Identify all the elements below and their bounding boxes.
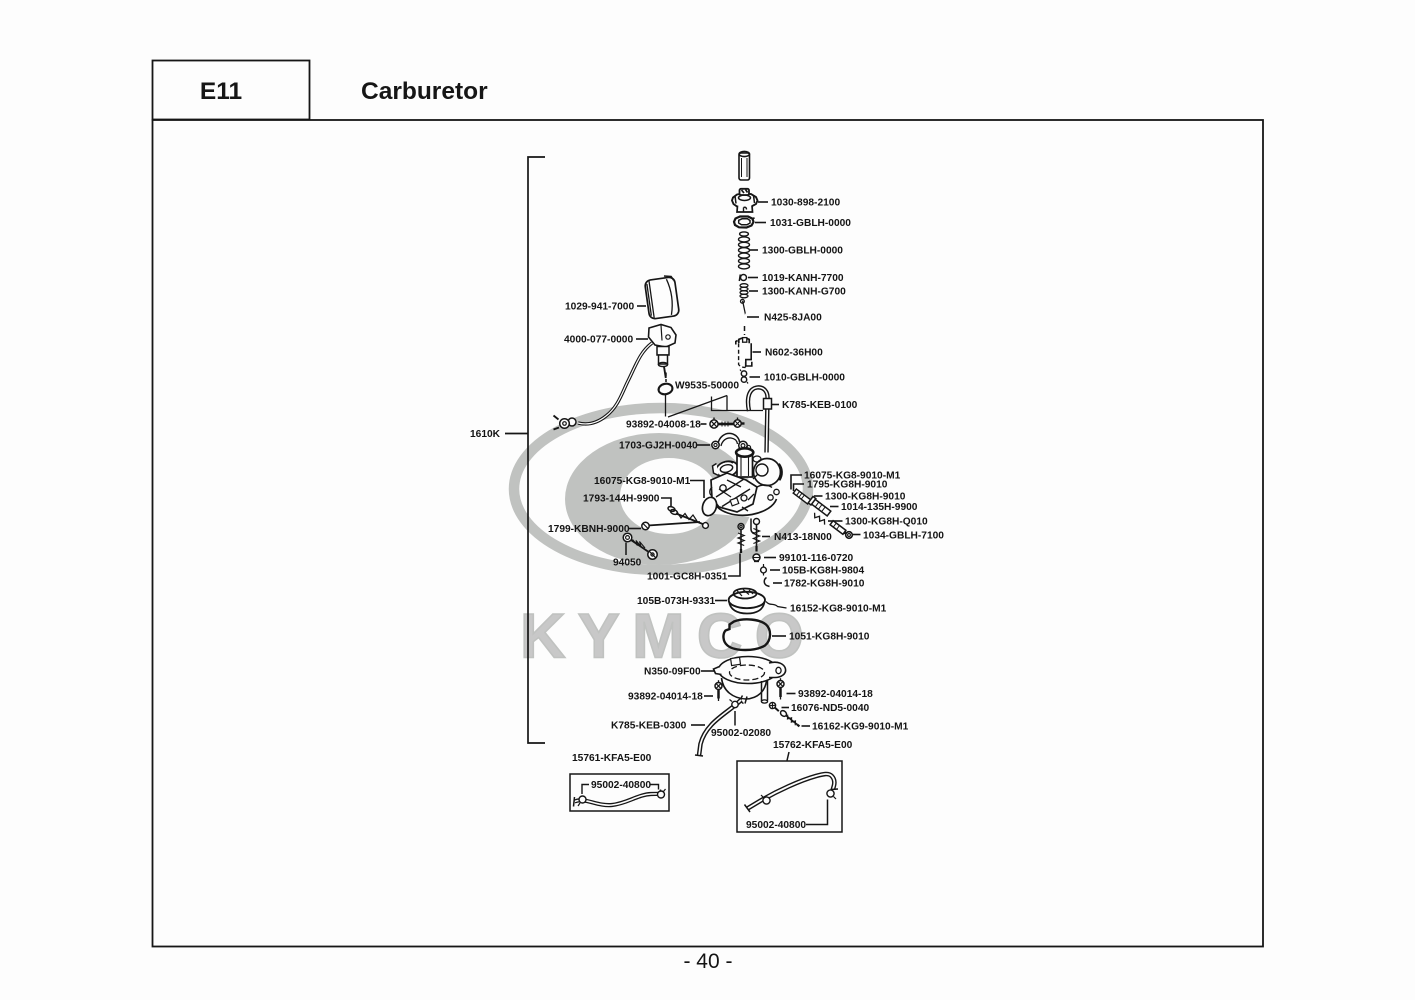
svg-text:1799-KBNH-9000: 1799-KBNH-9000 xyxy=(548,524,630,535)
svg-text:1010-GBLH-0000: 1010-GBLH-0000 xyxy=(764,373,845,384)
svg-text:16162-KG9-9010-M1: 16162-KG9-9010-M1 xyxy=(812,722,909,733)
svg-text:4000-077-0000: 4000-077-0000 xyxy=(564,335,633,346)
svg-text:K785-KEB-0100: K785-KEB-0100 xyxy=(782,400,858,411)
svg-text:99101-116-0720: 99101-116-0720 xyxy=(779,553,854,564)
svg-text:93892-04014-18: 93892-04014-18 xyxy=(628,692,703,703)
svg-text:1051-KG8H-9010: 1051-KG8H-9010 xyxy=(789,632,870,643)
svg-text:Carburetor: Carburetor xyxy=(361,78,488,105)
svg-text:105B-KG8H-9804: 105B-KG8H-9804 xyxy=(782,566,864,577)
svg-text:16076-ND5-0040: 16076-ND5-0040 xyxy=(791,703,869,714)
svg-text:1300-KANH-G700: 1300-KANH-G700 xyxy=(762,287,846,298)
svg-text:1300-KG8H-Q010: 1300-KG8H-Q010 xyxy=(845,517,928,528)
svg-text:16152-KG8-9010-M1: 16152-KG8-9010-M1 xyxy=(790,604,887,615)
svg-text:1300-GBLH-0000: 1300-GBLH-0000 xyxy=(762,246,843,257)
svg-text:94050: 94050 xyxy=(613,558,642,569)
svg-text:N413-18N00: N413-18N00 xyxy=(774,532,832,543)
svg-text:95002-40800: 95002-40800 xyxy=(746,820,806,831)
svg-text:1300-KG8H-9010: 1300-KG8H-9010 xyxy=(825,492,906,503)
svg-text:1034-GBLH-7100: 1034-GBLH-7100 xyxy=(863,531,944,542)
svg-text:1782-KG8H-9010: 1782-KG8H-9010 xyxy=(784,579,865,590)
svg-text:1610K: 1610K xyxy=(470,429,501,440)
svg-text:93892-04008-18: 93892-04008-18 xyxy=(626,420,701,431)
svg-text:E11: E11 xyxy=(200,78,242,105)
svg-text:95002-02080: 95002-02080 xyxy=(711,728,771,739)
svg-text:N350-09F00: N350-09F00 xyxy=(644,667,701,678)
svg-text:1703-GJ2H-0040: 1703-GJ2H-0040 xyxy=(619,441,698,452)
svg-text:105B-073H-9331: 105B-073H-9331 xyxy=(637,596,715,607)
svg-text:1014-135H-9900: 1014-135H-9900 xyxy=(841,502,918,513)
svg-text:1795-KG8H-9010: 1795-KG8H-9010 xyxy=(807,480,888,491)
svg-text:1001-GC8H-0351: 1001-GC8H-0351 xyxy=(647,572,728,583)
svg-text:- 40 -: - 40 - xyxy=(683,950,732,973)
svg-text:1029-941-7000: 1029-941-7000 xyxy=(565,302,634,313)
svg-text:1019-KANH-7700: 1019-KANH-7700 xyxy=(762,273,844,284)
svg-text:N425-8JA00: N425-8JA00 xyxy=(764,313,822,324)
svg-text:N602-36H00: N602-36H00 xyxy=(765,348,823,359)
svg-text:1793-144H-9900: 1793-144H-9900 xyxy=(583,494,660,505)
svg-text:K785-KEB-0300: K785-KEB-0300 xyxy=(611,721,687,732)
svg-text:W9535-50000: W9535-50000 xyxy=(675,381,739,392)
svg-text:95002-40800: 95002-40800 xyxy=(591,780,651,791)
svg-text:1030-898-2100: 1030-898-2100 xyxy=(771,198,840,209)
svg-text:15761-KFA5-E00: 15761-KFA5-E00 xyxy=(572,753,652,764)
svg-text:16075-KG8-9010-M1: 16075-KG8-9010-M1 xyxy=(594,476,691,487)
svg-text:1031-GBLH-0000: 1031-GBLH-0000 xyxy=(770,218,851,229)
svg-text:93892-04014-18: 93892-04014-18 xyxy=(798,689,873,700)
svg-text:15762-KFA5-E00: 15762-KFA5-E00 xyxy=(773,740,853,751)
